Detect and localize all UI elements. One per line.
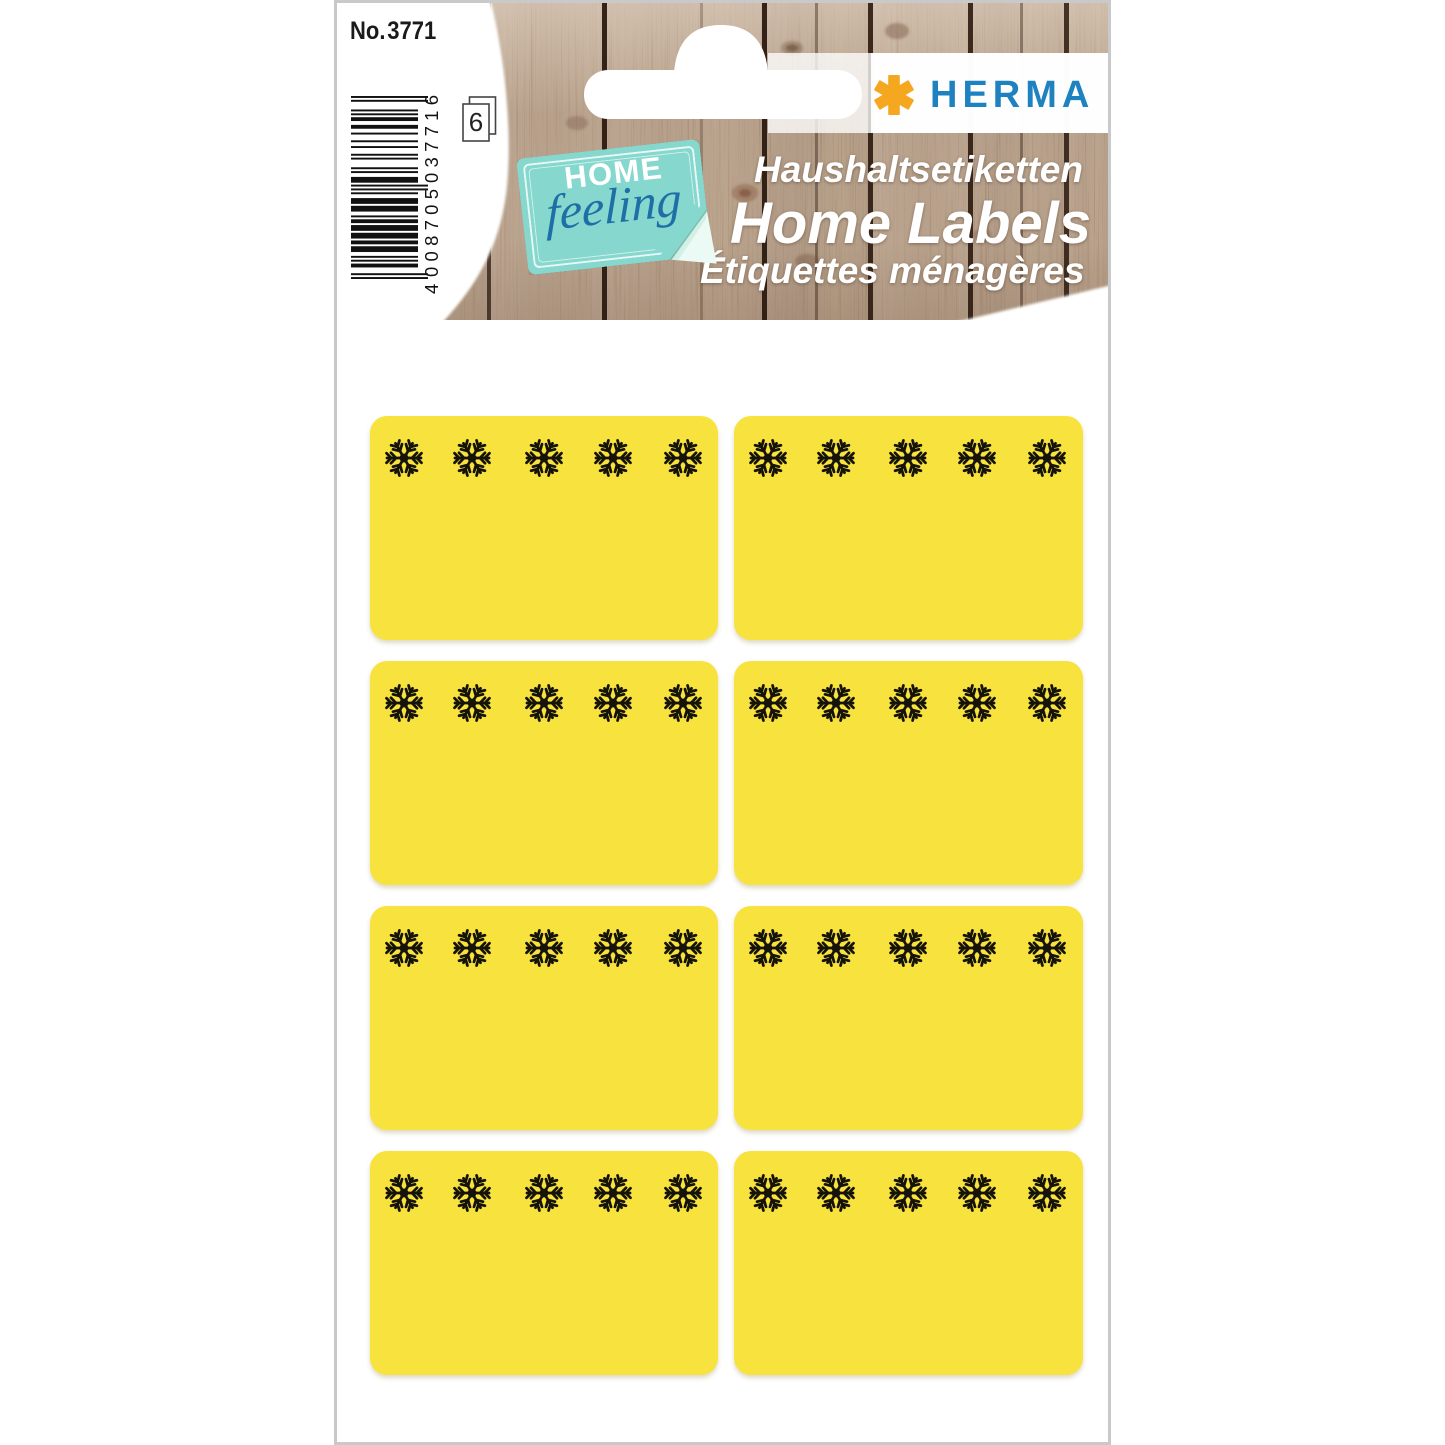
svg-text:037716: 037716 bbox=[421, 95, 442, 183]
svg-text:4: 4 bbox=[421, 284, 442, 294]
svg-text:6: 6 bbox=[469, 107, 483, 137]
svg-text:008705: 008705 bbox=[421, 189, 442, 277]
